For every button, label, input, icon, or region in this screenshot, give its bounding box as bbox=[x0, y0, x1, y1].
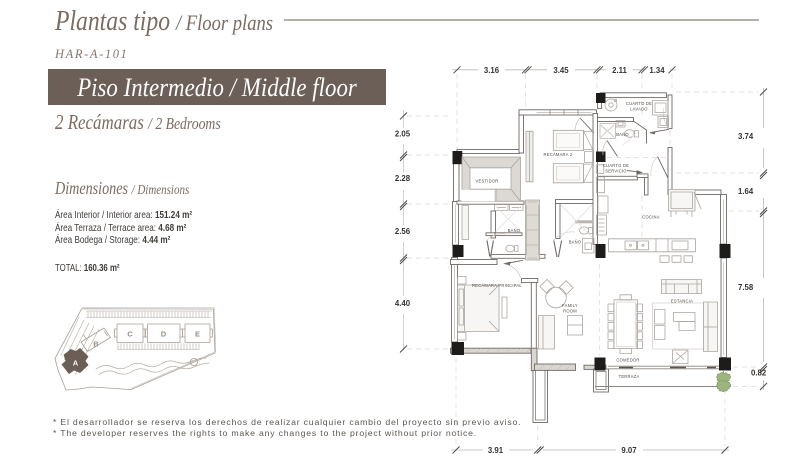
svg-text:E: E bbox=[195, 330, 200, 339]
svg-text:BAÑO: BAÑO bbox=[616, 132, 629, 137]
svg-text:2.05: 2.05 bbox=[395, 130, 411, 139]
svg-text:COMEDOR: COMEDOR bbox=[616, 357, 639, 362]
svg-text:BAÑO: BAÑO bbox=[508, 228, 521, 233]
svg-text:BAÑO: BAÑO bbox=[569, 240, 582, 245]
svg-text:2.28: 2.28 bbox=[395, 174, 411, 183]
svg-text:A: A bbox=[73, 359, 79, 368]
svg-text:LAVADO: LAVADO bbox=[630, 107, 648, 112]
svg-text:ROOM: ROOM bbox=[563, 309, 577, 314]
svg-text:SERVICIO: SERVICIO bbox=[605, 168, 627, 173]
svg-text:FAMILY: FAMILY bbox=[562, 303, 578, 308]
svg-text:3.45: 3.45 bbox=[553, 66, 569, 75]
svg-text:4.40: 4.40 bbox=[395, 299, 411, 308]
svg-text:2.56: 2.56 bbox=[395, 227, 411, 236]
svg-text:3.91: 3.91 bbox=[488, 446, 504, 455]
svg-text:3.74: 3.74 bbox=[738, 132, 754, 141]
svg-text:2.11: 2.11 bbox=[612, 66, 627, 75]
svg-text:1.64: 1.64 bbox=[738, 187, 754, 196]
svg-text:0.82: 0.82 bbox=[751, 369, 767, 378]
svg-text:TERRAZA: TERRAZA bbox=[619, 374, 640, 379]
svg-text:ESTANCIA: ESTANCIA bbox=[671, 299, 693, 304]
svg-text:CUARTO DE: CUARTO DE bbox=[626, 101, 652, 106]
svg-text:D: D bbox=[161, 330, 167, 339]
svg-text:C: C bbox=[127, 330, 133, 339]
svg-text:7.58: 7.58 bbox=[738, 283, 754, 292]
svg-text:COCINA: COCINA bbox=[642, 215, 659, 220]
svg-text:VESTIDOR: VESTIDOR bbox=[476, 179, 499, 184]
svg-text:1.34: 1.34 bbox=[649, 66, 665, 75]
svg-text:RECÁMARA PRINCIPAL: RECÁMARA PRINCIPAL bbox=[472, 283, 522, 288]
svg-text:B: B bbox=[93, 340, 99, 349]
svg-text:3.16: 3.16 bbox=[484, 66, 500, 75]
svg-text:RECÁMARA 2: RECÁMARA 2 bbox=[544, 152, 573, 157]
svg-text:9.07: 9.07 bbox=[621, 446, 636, 455]
